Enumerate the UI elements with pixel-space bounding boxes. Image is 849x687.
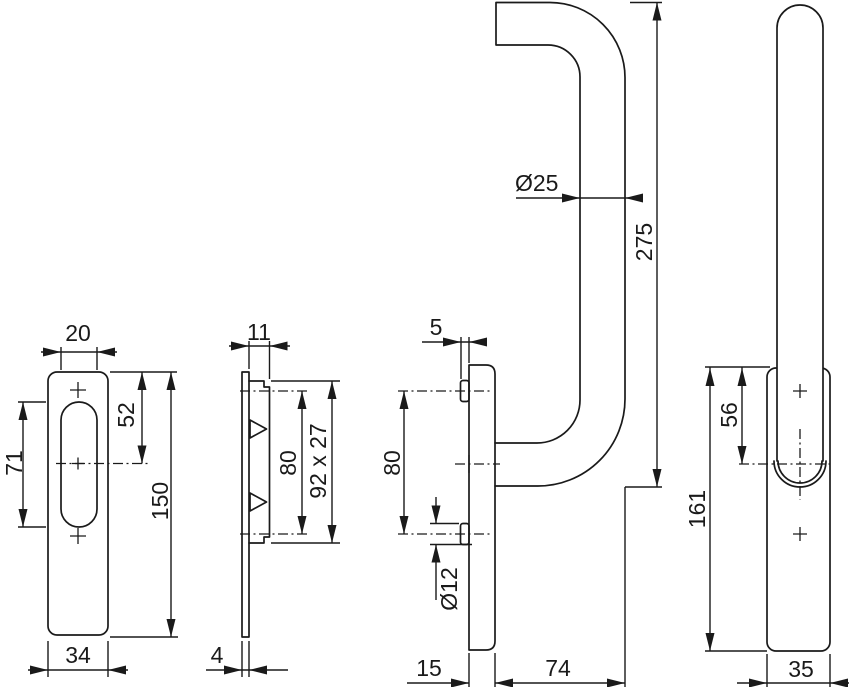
dim-label-161: 161 <box>684 490 710 528</box>
dim-projection: 74 <box>495 487 625 687</box>
dim-label-5: 5 <box>430 314 443 340</box>
clip-top <box>250 420 267 438</box>
cross-mark-bottom <box>70 528 86 544</box>
view-plate-side: 11 80 92 x 27 4 <box>206 319 340 677</box>
technical-drawing-canvas: 20 71 52 150 34 <box>0 0 849 687</box>
dim-boss-depth: 11 <box>229 319 290 379</box>
dim-label-4: 4 <box>211 642 224 668</box>
dim-label-20: 20 <box>65 320 91 346</box>
view-handle-side: 5 80 Ø12 15 74 <box>379 3 662 687</box>
dim-pin-protrusion: 5 <box>422 314 487 379</box>
dim-label-150: 150 <box>147 482 173 520</box>
boss-profile <box>249 381 270 543</box>
dim-label-dia12: Ø12 <box>436 567 462 610</box>
dim-plate-depth: 15 <box>407 653 469 687</box>
dim-hole-spacing-side: 80 <box>275 391 307 534</box>
dim-label-15: 15 <box>416 655 442 681</box>
dim-label-35: 35 <box>788 656 814 682</box>
dim-label-11: 11 <box>247 319 271 345</box>
dim-label-92x27: 92 x 27 <box>305 423 331 498</box>
dim-plate-thickness: 4 <box>206 641 288 677</box>
view-handle-front: 56 161 35 <box>684 5 849 687</box>
dim-pin-diameter: Ø12 <box>430 497 472 611</box>
dim-tube-diameter: Ø25 <box>515 170 643 203</box>
dim-label-275: 275 <box>631 223 657 261</box>
cross-mark-bottom <box>793 527 807 541</box>
narrow-plate-profile <box>469 365 495 650</box>
dim-label-74: 74 <box>545 655 571 681</box>
dim-label-71: 71 <box>1 450 27 476</box>
dim-plate-width: 34 <box>28 641 128 677</box>
plate-profile <box>242 372 249 637</box>
dim-slot-width: 20 <box>41 320 117 370</box>
dim-top-to-center-front: 56 <box>705 367 770 464</box>
dim-label-80-plate: 80 <box>275 450 301 476</box>
clip-bottom <box>250 493 267 511</box>
dim-label-56: 56 <box>716 402 742 428</box>
dim-label-34: 34 <box>65 642 91 668</box>
dim-grip-length: 275 <box>625 3 662 488</box>
dim-slot-height: 71 <box>1 402 46 527</box>
dim-label-80-handle: 80 <box>379 450 405 476</box>
dim-label-dia25: Ø25 <box>515 170 558 196</box>
cross-mark-top <box>70 382 86 398</box>
dim-top-to-center: 52 <box>110 372 177 464</box>
view-plate-front: 20 71 52 150 34 <box>1 320 178 677</box>
dim-hole-spacing-handle: 80 <box>379 391 409 534</box>
backplate-outline <box>48 372 108 635</box>
dim-front-plate-width: 35 <box>737 654 849 687</box>
oval-slot <box>61 402 97 527</box>
dim-label-52: 52 <box>113 402 139 428</box>
handle-profile <box>495 3 625 487</box>
